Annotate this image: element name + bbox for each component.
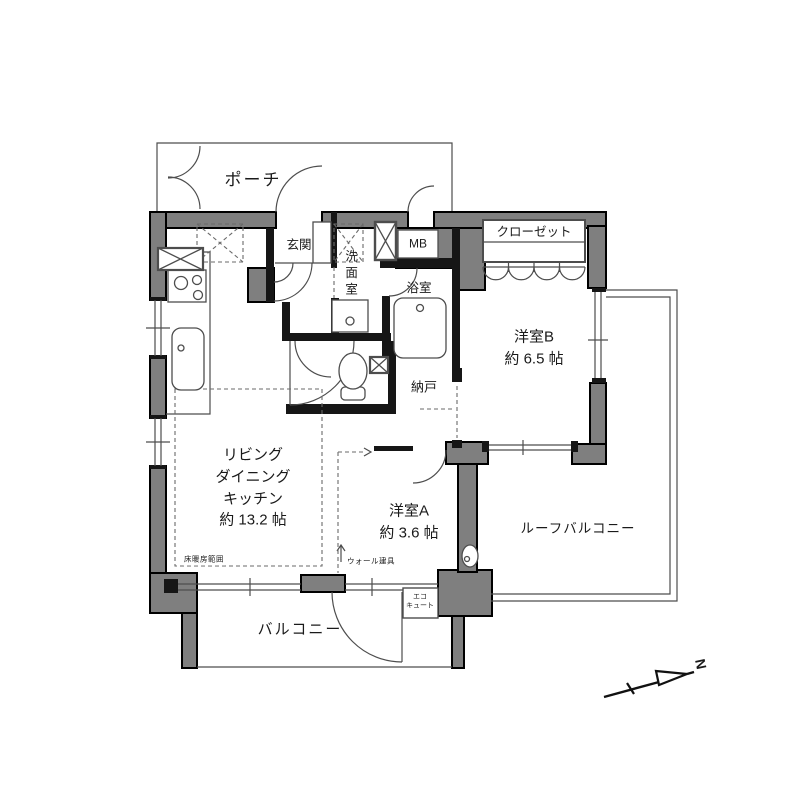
toilet-door-arc <box>295 341 331 377</box>
room-b-east-window <box>588 292 608 378</box>
tub-dot <box>417 305 424 312</box>
wall-segment <box>282 333 391 341</box>
wall-segment <box>590 383 606 444</box>
closet-label: クローゼット <box>496 223 571 241</box>
north-arrow <box>604 671 694 697</box>
ldk-label: リビング ダイニング キッチン 約 13.2 帖 <box>215 445 290 532</box>
burner <box>175 277 188 290</box>
window-cap <box>150 297 166 301</box>
ldk-line2: ダイニング <box>215 466 290 488</box>
toilet-bowl <box>339 353 367 389</box>
room-b-name: 洋室B <box>504 326 563 348</box>
wall-segment <box>150 356 166 418</box>
wall-segment <box>452 368 462 382</box>
bathroom-label: 浴室 <box>406 279 431 297</box>
wall-segment <box>182 613 197 668</box>
window-cap <box>592 288 606 292</box>
roof-balcony-label: ルーフバルコニー <box>521 519 636 539</box>
porch-door-arc <box>168 177 200 209</box>
porch-outline <box>157 143 452 212</box>
wall-segment <box>150 466 166 584</box>
balcony-label: バルコニー <box>258 619 343 641</box>
window-cap <box>482 441 489 452</box>
window-cap <box>150 465 166 469</box>
burner <box>194 291 203 300</box>
entry-door-arc <box>276 166 322 212</box>
porch-door-arc <box>168 146 200 178</box>
room-a-label: 洋室A 約 3.6 帖 <box>379 500 438 544</box>
wall-segment <box>374 446 413 451</box>
wall-segment <box>164 579 178 593</box>
wall-segment <box>452 616 464 668</box>
wall-segment <box>438 570 492 616</box>
room-a-name: 洋室A <box>379 500 438 522</box>
meter-box-label: MB <box>409 235 427 252</box>
ecocute-label: エコ キュート <box>406 593 434 612</box>
ecocute-line1: エコ <box>406 593 434 602</box>
wall-segment <box>301 575 345 592</box>
floor-plan: ポーチ 玄関 洗面室 MB 浴室 クローゼット 洋室B 約 6.5 帖 納戸 リ… <box>0 0 800 800</box>
wall-segment <box>452 440 462 448</box>
shoe-cabinet <box>313 222 331 263</box>
burner <box>193 276 202 285</box>
window-cap <box>150 415 166 419</box>
room-b-south-window <box>489 440 571 455</box>
ecocute-line2: キュート <box>406 602 434 611</box>
ldk-line3: キッチン <box>215 488 290 510</box>
porch-label: ポーチ <box>225 169 282 194</box>
partition-arrows <box>337 448 371 562</box>
basin-dot <box>346 317 354 325</box>
room-a-door-arc <box>413 450 446 483</box>
floor-heating-label: 床暖房範囲 <box>183 555 225 566</box>
entrance-label: 玄関 <box>286 236 311 254</box>
wall-segment <box>588 226 606 288</box>
window-cap <box>571 441 578 452</box>
window-cap <box>150 355 166 359</box>
wall-segment <box>266 228 274 302</box>
ldk-line1: リビング <box>215 445 290 467</box>
wall-segment <box>150 212 276 228</box>
kitchen-sink <box>172 328 204 390</box>
wall-segment <box>452 228 460 368</box>
mb-door-arc <box>408 186 434 212</box>
wall-segment <box>286 404 396 414</box>
movable-wall-line <box>338 452 364 573</box>
wall-segment <box>458 228 485 290</box>
balcony-faucet <box>462 545 478 567</box>
outer-walls <box>150 212 606 668</box>
floor-plan-geometry <box>0 0 800 800</box>
north-arrowhead <box>656 671 687 685</box>
washroom-label: 洗面室 <box>341 249 359 299</box>
storage-label: 納戸 <box>411 379 437 398</box>
window-cap <box>592 378 606 383</box>
balcony-door-arc <box>332 592 402 662</box>
room-a-size: 約 3.6 帖 <box>379 522 438 544</box>
room-b-label: 洋室B 約 6.5 帖 <box>504 326 563 370</box>
wall-fitting-label: ウォール建具 <box>347 557 395 568</box>
wall-segment <box>282 302 290 341</box>
faucet-dot <box>178 345 184 351</box>
washbasin <box>332 300 368 332</box>
room-b-size: 約 6.5 帖 <box>504 348 563 370</box>
ldk-size: 約 13.2 帖 <box>215 510 290 532</box>
hall-door-arcs <box>274 263 312 301</box>
faucet-dot <box>465 557 470 562</box>
